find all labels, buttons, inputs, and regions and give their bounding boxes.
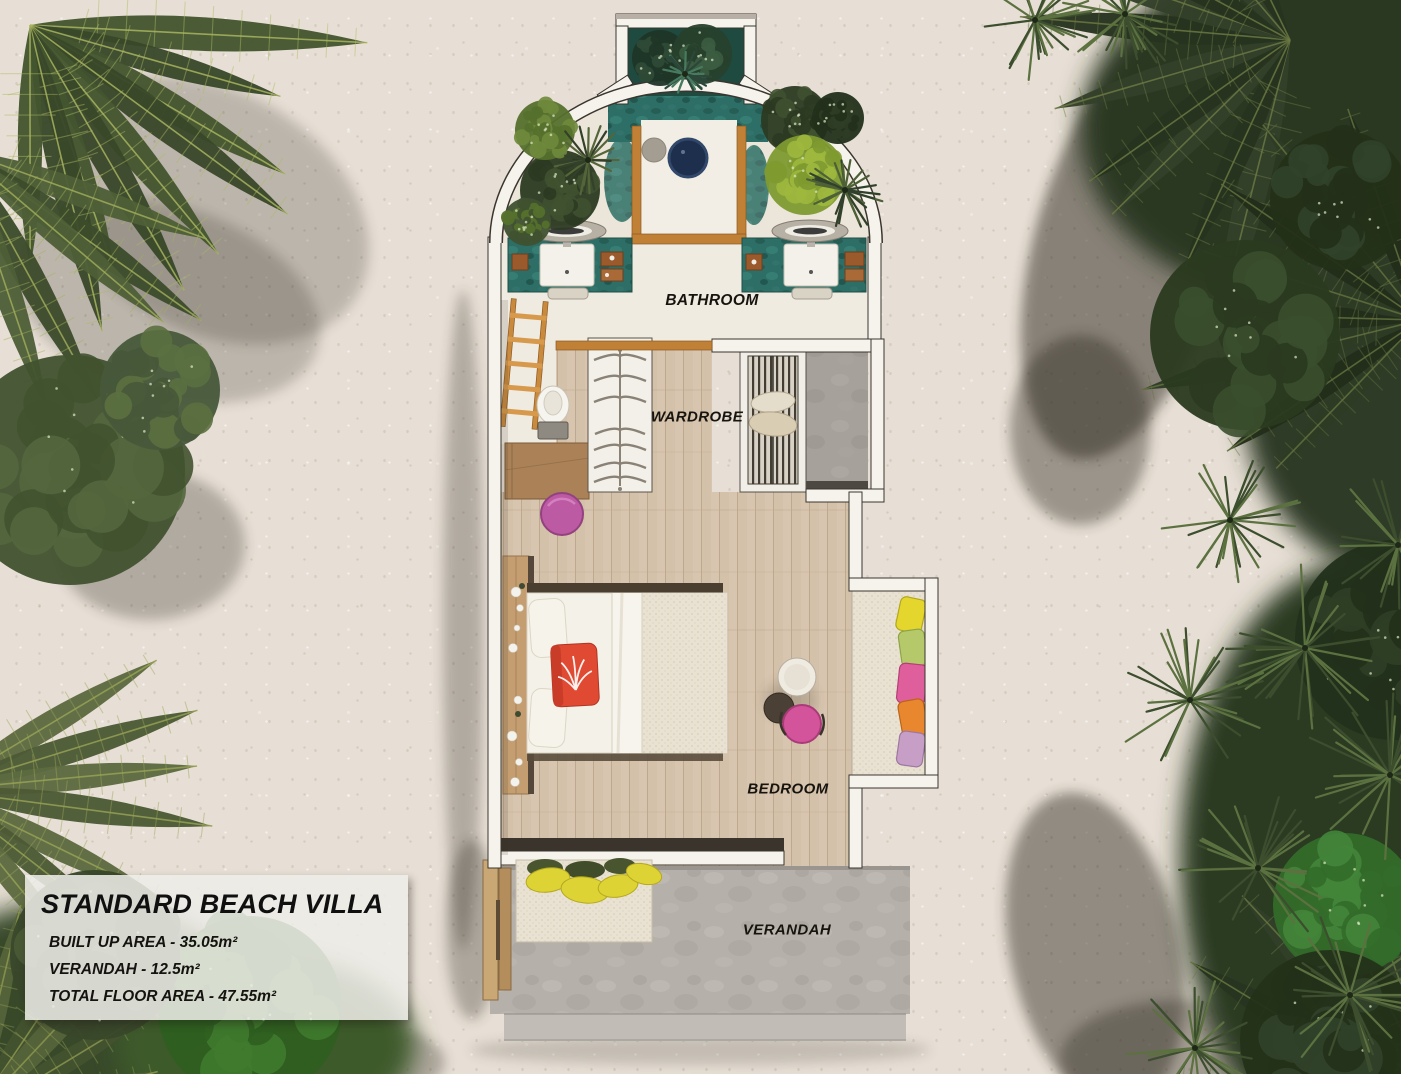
wardrobe-unit: [588, 338, 652, 492]
window-seat: [852, 591, 929, 775]
spec-built-up-area: BUILT UP AREA - 35.05m²: [49, 934, 394, 952]
villa-title: STANDARD BEACH VILLA: [41, 889, 394, 920]
floor-plan: [443, 14, 938, 1065]
round-tub: [669, 139, 707, 177]
pillow-green: [898, 628, 929, 667]
verandah-wood-bench: [483, 860, 511, 1000]
stone-stool: [642, 138, 666, 162]
room-label-verandah: VERANDAH: [743, 922, 831, 939]
spec-verandah-area: VERANDAH - 12.5m²: [49, 961, 394, 979]
spec-total-floor-area: TOTAL FLOOR AREA - 47.55m²: [49, 988, 394, 1006]
verandah-daybed: [516, 858, 664, 942]
louver-closet: [740, 348, 806, 492]
toilet: [537, 386, 569, 439]
entry-tile: [806, 352, 868, 489]
pink-chair: [783, 705, 821, 743]
wood-counter: [505, 443, 589, 499]
accent-pillow: [550, 643, 599, 707]
pillow-pink: [896, 663, 928, 706]
beach-villa-floorplan-page: { "title_card": { "title": "STANDARD BEA…: [0, 0, 1401, 1074]
pillow-lavender: [896, 730, 926, 767]
room-label-bedroom: BEDROOM: [747, 781, 828, 798]
title-card: STANDARD BEACH VILLA BUILT UP AREA - 35.…: [25, 875, 408, 1020]
room-label-wardrobe: WARDROBE: [651, 409, 743, 426]
sliding-door-rail: [496, 838, 784, 851]
room-label-bathroom: BATHROOM: [665, 292, 758, 310]
bed: [527, 583, 727, 761]
verandah-step: [504, 1014, 906, 1041]
